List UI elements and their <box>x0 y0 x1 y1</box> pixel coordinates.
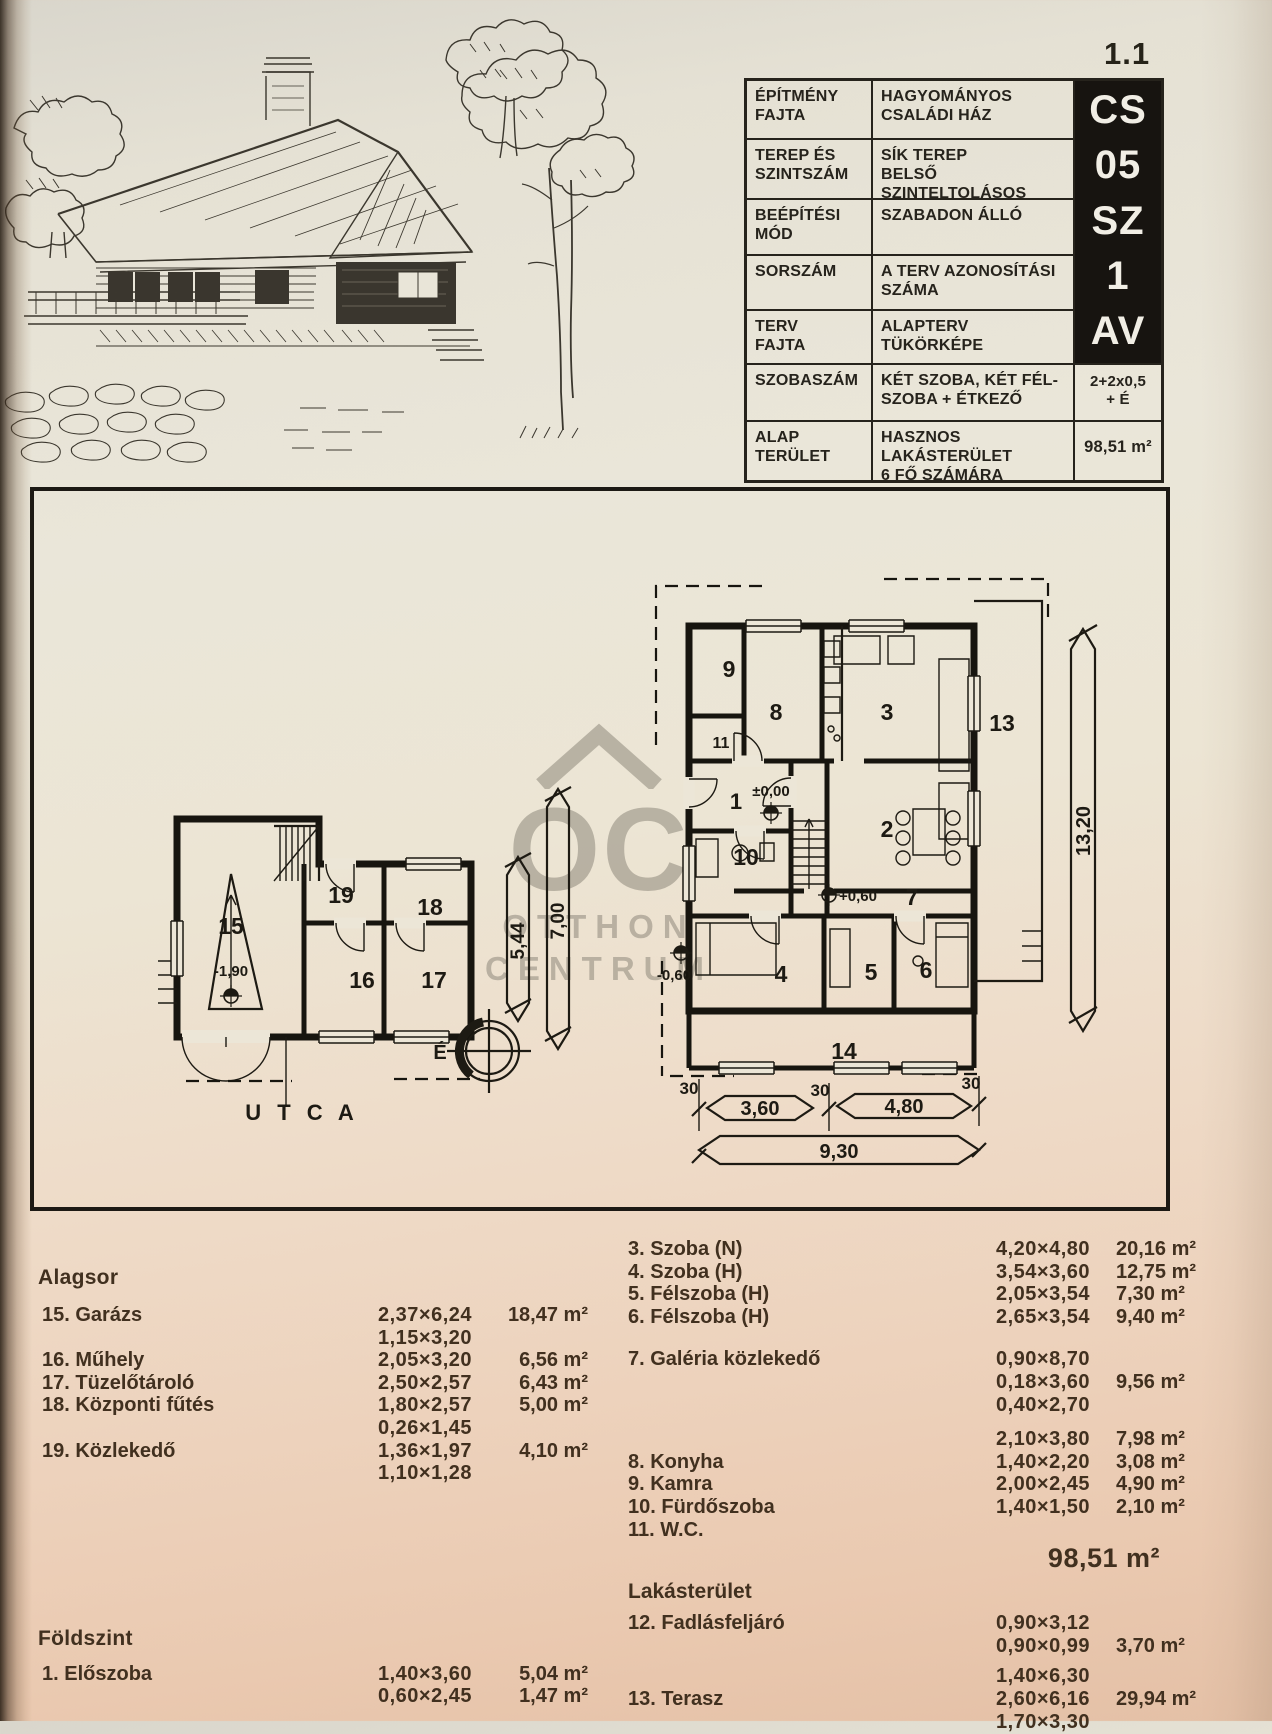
schedule-row: 1,40×6,30 <box>622 1665 1162 1688</box>
room-number-6: 6 <box>920 957 933 983</box>
room-name: 17. Tüzelőtároló <box>36 1372 378 1395</box>
room-dims: 1,70×3,30 <box>996 1711 1116 1734</box>
level-zero: ±0,00 <box>752 783 789 800</box>
room-dims: 1,36×1,97 <box>378 1440 506 1463</box>
room-number-1: 1 <box>730 789 742 814</box>
plan-code-block: CS 05 SZ 1 AV <box>1073 81 1161 363</box>
spec-value: SZABADON ÁLLÓ <box>871 198 1073 254</box>
room-number-16: 16 <box>349 967 375 993</box>
room-number-19: 19 <box>328 882 354 908</box>
plan-code: 1 <box>1106 250 1129 302</box>
spec-value: HASZNOS LAKÁSTERÜLET 6 FŐ SZÁMÁRA <box>871 420 1073 480</box>
page-edge-shadow <box>1200 0 1272 1721</box>
room-name: 18. Központi fűtés <box>36 1394 378 1417</box>
dim-tick-30: 30 <box>962 1074 981 1093</box>
dim-930: 9,30 <box>820 1141 859 1163</box>
spec-table: ÉPÍTMÉNY FAJTA HAGYOMÁNYOS CSALÁDI HÁZ T… <box>744 78 1164 483</box>
room-name: 15. Garázs <box>36 1304 378 1327</box>
room-dims: 0,90×8,70 <box>996 1348 1116 1371</box>
spec-label: TERV FAJTA <box>747 309 871 363</box>
schedule-row: 0,18×3,609,56 m² <box>622 1371 1162 1394</box>
north-label: É <box>433 1041 446 1064</box>
room-dims: 0,40×2,70 <box>996 1394 1116 1417</box>
room-dims: 0,26×1,45 <box>378 1417 506 1440</box>
schedule-row: 15. Garázs2,37×6,2418,47 m² <box>36 1304 592 1327</box>
room-name: 5. Félszoba (H) <box>622 1283 996 1306</box>
schedule-row: 17. Tüzelőtároló2,50×2,576,43 m² <box>36 1372 592 1395</box>
room-area: 5,00 m² <box>506 1394 592 1417</box>
schedule-row: 4. Szoba (H)3,54×3,6012,75 m² <box>622 1261 1162 1284</box>
room-number-9: 9 <box>723 656 736 682</box>
spec-label: BEÉPÍTÉSI MÓD <box>747 198 871 254</box>
dim-480: 4,80 <box>885 1096 924 1118</box>
room-name: 10. Fürdőszoba <box>622 1496 996 1519</box>
north-compass-icon: É <box>433 1009 531 1093</box>
spec-value: ALAPTERV TÜKÖRKÉPE <box>871 309 1073 363</box>
schedule-row: 13. Terasz2,60×6,1629,94 m² <box>622 1688 1162 1711</box>
room-dims: 4,20×4,80 <box>996 1238 1116 1261</box>
room-number-3: 3 <box>881 699 894 725</box>
room-area: 2,10 m² <box>1116 1496 1189 1519</box>
room-area: 7,98 m² <box>1116 1428 1189 1451</box>
floorplan-panel: OC OTTHON CENTRUM <box>30 487 1170 1211</box>
room-number-8: 8 <box>770 699 783 725</box>
room-area: 9,56 m² <box>1116 1371 1189 1394</box>
room-dims: 2,37×6,24 <box>378 1304 506 1327</box>
dim-700: 7,00 <box>548 903 569 940</box>
room-dims: 2,10×3,80 <box>996 1428 1116 1451</box>
room-name: 4. Szoba (H) <box>622 1261 996 1284</box>
room-name: 7. Galéria közlekedő <box>622 1348 996 1371</box>
schedule-row: 6. Félszoba (H)2,65×3,549,40 m² <box>622 1306 1162 1329</box>
room-dims: 2,65×3,54 <box>996 1306 1116 1329</box>
dim-1320: 13,20 <box>1073 806 1095 856</box>
room-name: 19. Közlekedő <box>36 1440 378 1463</box>
room-number-7: 7 <box>906 884 919 910</box>
room-name: 13. Terasz <box>622 1688 996 1711</box>
level-minus: -0,60 <box>657 967 691 984</box>
room-area: 12,75 m² <box>1116 1261 1200 1284</box>
spec-value: HAGYOMÁNYOS CSALÁDI HÁZ <box>871 81 1073 138</box>
section-heading-alagsor: Alagsor <box>38 1266 592 1290</box>
room-area: 6,56 m² <box>506 1349 592 1372</box>
section-heading-foldszint: Földszint <box>38 1627 592 1651</box>
room-dims: 2,50×2,57 <box>378 1372 506 1395</box>
schedule-row: 1,70×3,30 <box>622 1711 1162 1734</box>
schedule-row: 16. Műhely2,05×3,206,56 m² <box>36 1349 592 1372</box>
room-number-13: 13 <box>989 710 1015 736</box>
room-dims: 3,54×3,60 <box>996 1261 1116 1284</box>
street-label: U T C A <box>245 1100 359 1125</box>
room-name: 3. Szoba (N) <box>622 1238 996 1261</box>
room-dims: 0,90×0,99 <box>996 1635 1116 1658</box>
room-number-11: 11 <box>713 735 730 752</box>
room-name: 9. Kamra <box>622 1473 996 1496</box>
spec-label: TEREP ÉS SZINTSZÁM <box>747 138 871 198</box>
schedule-row: 8. Konyha1,40×2,203,08 m² <box>622 1451 1162 1474</box>
level-plus: +0,60 <box>839 888 877 905</box>
dim-544: 5,44 <box>508 922 529 959</box>
schedule-row: 0,60×2,451,47 m² <box>36 1685 592 1708</box>
basement-plan: 15 -1,90 19 18 16 17 U T C A 5,44 7,00 É <box>158 787 571 1125</box>
schedule-row: 1,15×3,20 <box>36 1327 592 1350</box>
schedule-row: 11. W.C. <box>622 1519 1162 1542</box>
plan-code: 05 <box>1095 139 1142 191</box>
plan-code: AV <box>1091 305 1146 357</box>
plan-code: CS <box>1089 84 1147 136</box>
schedule-row: 19. Közlekedő1,36×1,974,10 m² <box>36 1440 592 1463</box>
total-living-area: 98,51 m² <box>622 1543 1162 1574</box>
room-dims: 1,40×2,20 <box>996 1451 1116 1474</box>
room-area: 1,47 m² <box>506 1685 592 1708</box>
schedule-row: 10. Fürdőszoba1,40×1,502,10 m² <box>622 1496 1162 1519</box>
dim-tick-30: 30 <box>680 1079 699 1098</box>
room-area: 3,08 m² <box>1116 1451 1189 1474</box>
spec-label: SZOBASZÁM <box>747 363 871 420</box>
schedule-row: 0,26×1,45 <box>36 1417 592 1440</box>
room-dims: 0,18×3,60 <box>996 1371 1116 1394</box>
room-number-5: 5 <box>865 959 878 985</box>
room-number-15: 15 <box>218 913 244 939</box>
room-area: 18,47 m² <box>506 1304 592 1327</box>
floorplan-drawing: 9 8 11 3 13 1 ±0,00 10 2 +0,60 7 4 5 6 1… <box>34 491 1166 1207</box>
room-number-4: 4 <box>775 961 788 987</box>
room-number-10: 10 <box>733 844 759 870</box>
room-dims: 0,90×3,12 <box>996 1612 1116 1635</box>
room-area: 5,04 m² <box>506 1663 592 1686</box>
schedule-row: 1. Előszoba1,40×3,605,04 m² <box>36 1663 592 1686</box>
area-value: 98,51 m² <box>1073 420 1161 480</box>
room-dims: 1,40×1,50 <box>996 1496 1116 1519</box>
room-name: 8. Konyha <box>622 1451 996 1474</box>
room-number-2: 2 <box>881 816 894 842</box>
schedule-row: 2,10×3,807,98 m² <box>622 1428 1162 1451</box>
schedule-row: 3. Szoba (N)4,20×4,8020,16 m² <box>622 1238 1162 1261</box>
room-dims: 1,80×2,57 <box>378 1394 506 1417</box>
room-name: 6. Félszoba (H) <box>622 1306 996 1329</box>
room-name: 12. Fadlásfeljáró <box>622 1612 996 1635</box>
room-name: 1. Előszoba <box>36 1663 378 1686</box>
spec-label: ALAP TERÜLET <box>747 420 871 480</box>
schedule-row: 0,40×2,70 <box>622 1394 1162 1417</box>
room-area: 20,16 m² <box>1116 1238 1200 1261</box>
room-dims: 2,05×3,20 <box>378 1349 506 1372</box>
room-area: 29,94 m² <box>1116 1688 1200 1711</box>
schedule-row: 1,10×1,28 <box>36 1462 592 1485</box>
spec-value: A TERV AZONOSÍTÁSI SZÁMA <box>871 254 1073 309</box>
room-number-17: 17 <box>421 967 447 993</box>
room-area: 7,30 m² <box>1116 1283 1189 1306</box>
spec-label: ÉPÍTMÉNY FAJTA <box>747 81 871 138</box>
room-dims: 0,60×2,45 <box>378 1685 506 1708</box>
room-area: 3,70 m² <box>1116 1635 1189 1658</box>
room-number-18: 18 <box>417 894 443 920</box>
room-number-14: 14 <box>831 1038 857 1064</box>
room-dims: 2,00×2,45 <box>996 1473 1116 1496</box>
schedule-row: 18. Központi fűtés1,80×2,575,00 m² <box>36 1394 592 1417</box>
room-area: 6,43 m² <box>506 1372 592 1395</box>
dim-tick-30: 30 <box>811 1081 830 1100</box>
room-dims: 1,15×3,20 <box>378 1327 506 1350</box>
ground-floor-plan: 9 8 11 3 13 1 ±0,00 10 2 +0,60 7 4 5 6 1… <box>656 579 1097 1164</box>
dim-360: 3,60 <box>741 1098 780 1120</box>
room-dims: 1,40×3,60 <box>378 1663 506 1686</box>
spec-label: SORSZÁM <box>747 254 871 309</box>
room-dims: 1,40×6,30 <box>996 1665 1116 1688</box>
room-area: 4,10 m² <box>506 1440 592 1463</box>
schedule-row: 7. Galéria közlekedő0,90×8,70 <box>622 1348 1162 1371</box>
schedule-row: 9. Kamra2,00×2,454,90 m² <box>622 1473 1162 1496</box>
room-count-code: 2+2x0,5 + É <box>1073 363 1161 420</box>
room-area: 9,40 m² <box>1116 1306 1189 1329</box>
room-name: 16. Műhely <box>36 1349 378 1372</box>
level-garage: -1,90 <box>214 963 248 980</box>
schedule-row: 0,90×0,993,70 m² <box>622 1635 1162 1658</box>
room-dims: 2,05×3,54 <box>996 1283 1116 1306</box>
schedule-left-column: Alagsor 15. Garázs2,37×6,2418,47 m² 1,15… <box>36 1266 592 1708</box>
total-living-area-label: Lakásterület <box>622 1580 1162 1604</box>
room-name: 11. W.C. <box>622 1519 996 1542</box>
spec-value: KÉT SZOBA, KÉT FÉL- SZOBA + ÉTKEZŐ <box>871 363 1073 420</box>
house-sketch <box>0 0 648 470</box>
plan-code: SZ <box>1091 195 1144 247</box>
room-dims: 1,10×1,28 <box>378 1462 506 1485</box>
schedule-right-column: 3. Szoba (N)4,20×4,8020,16 m² 4. Szoba (… <box>622 1238 1162 1733</box>
page-number: 1.1 <box>1104 36 1150 72</box>
schedule-row: 5. Félszoba (H)2,05×3,547,30 m² <box>622 1283 1162 1306</box>
spec-value: SÍK TEREP BELSŐ SZINTELTOLÁSOS <box>871 138 1073 198</box>
room-dims: 2,60×6,16 <box>996 1688 1116 1711</box>
room-area: 4,90 m² <box>1116 1473 1189 1496</box>
schedule-row: 12. Fadlásfeljáró0,90×3,12 <box>622 1612 1162 1635</box>
